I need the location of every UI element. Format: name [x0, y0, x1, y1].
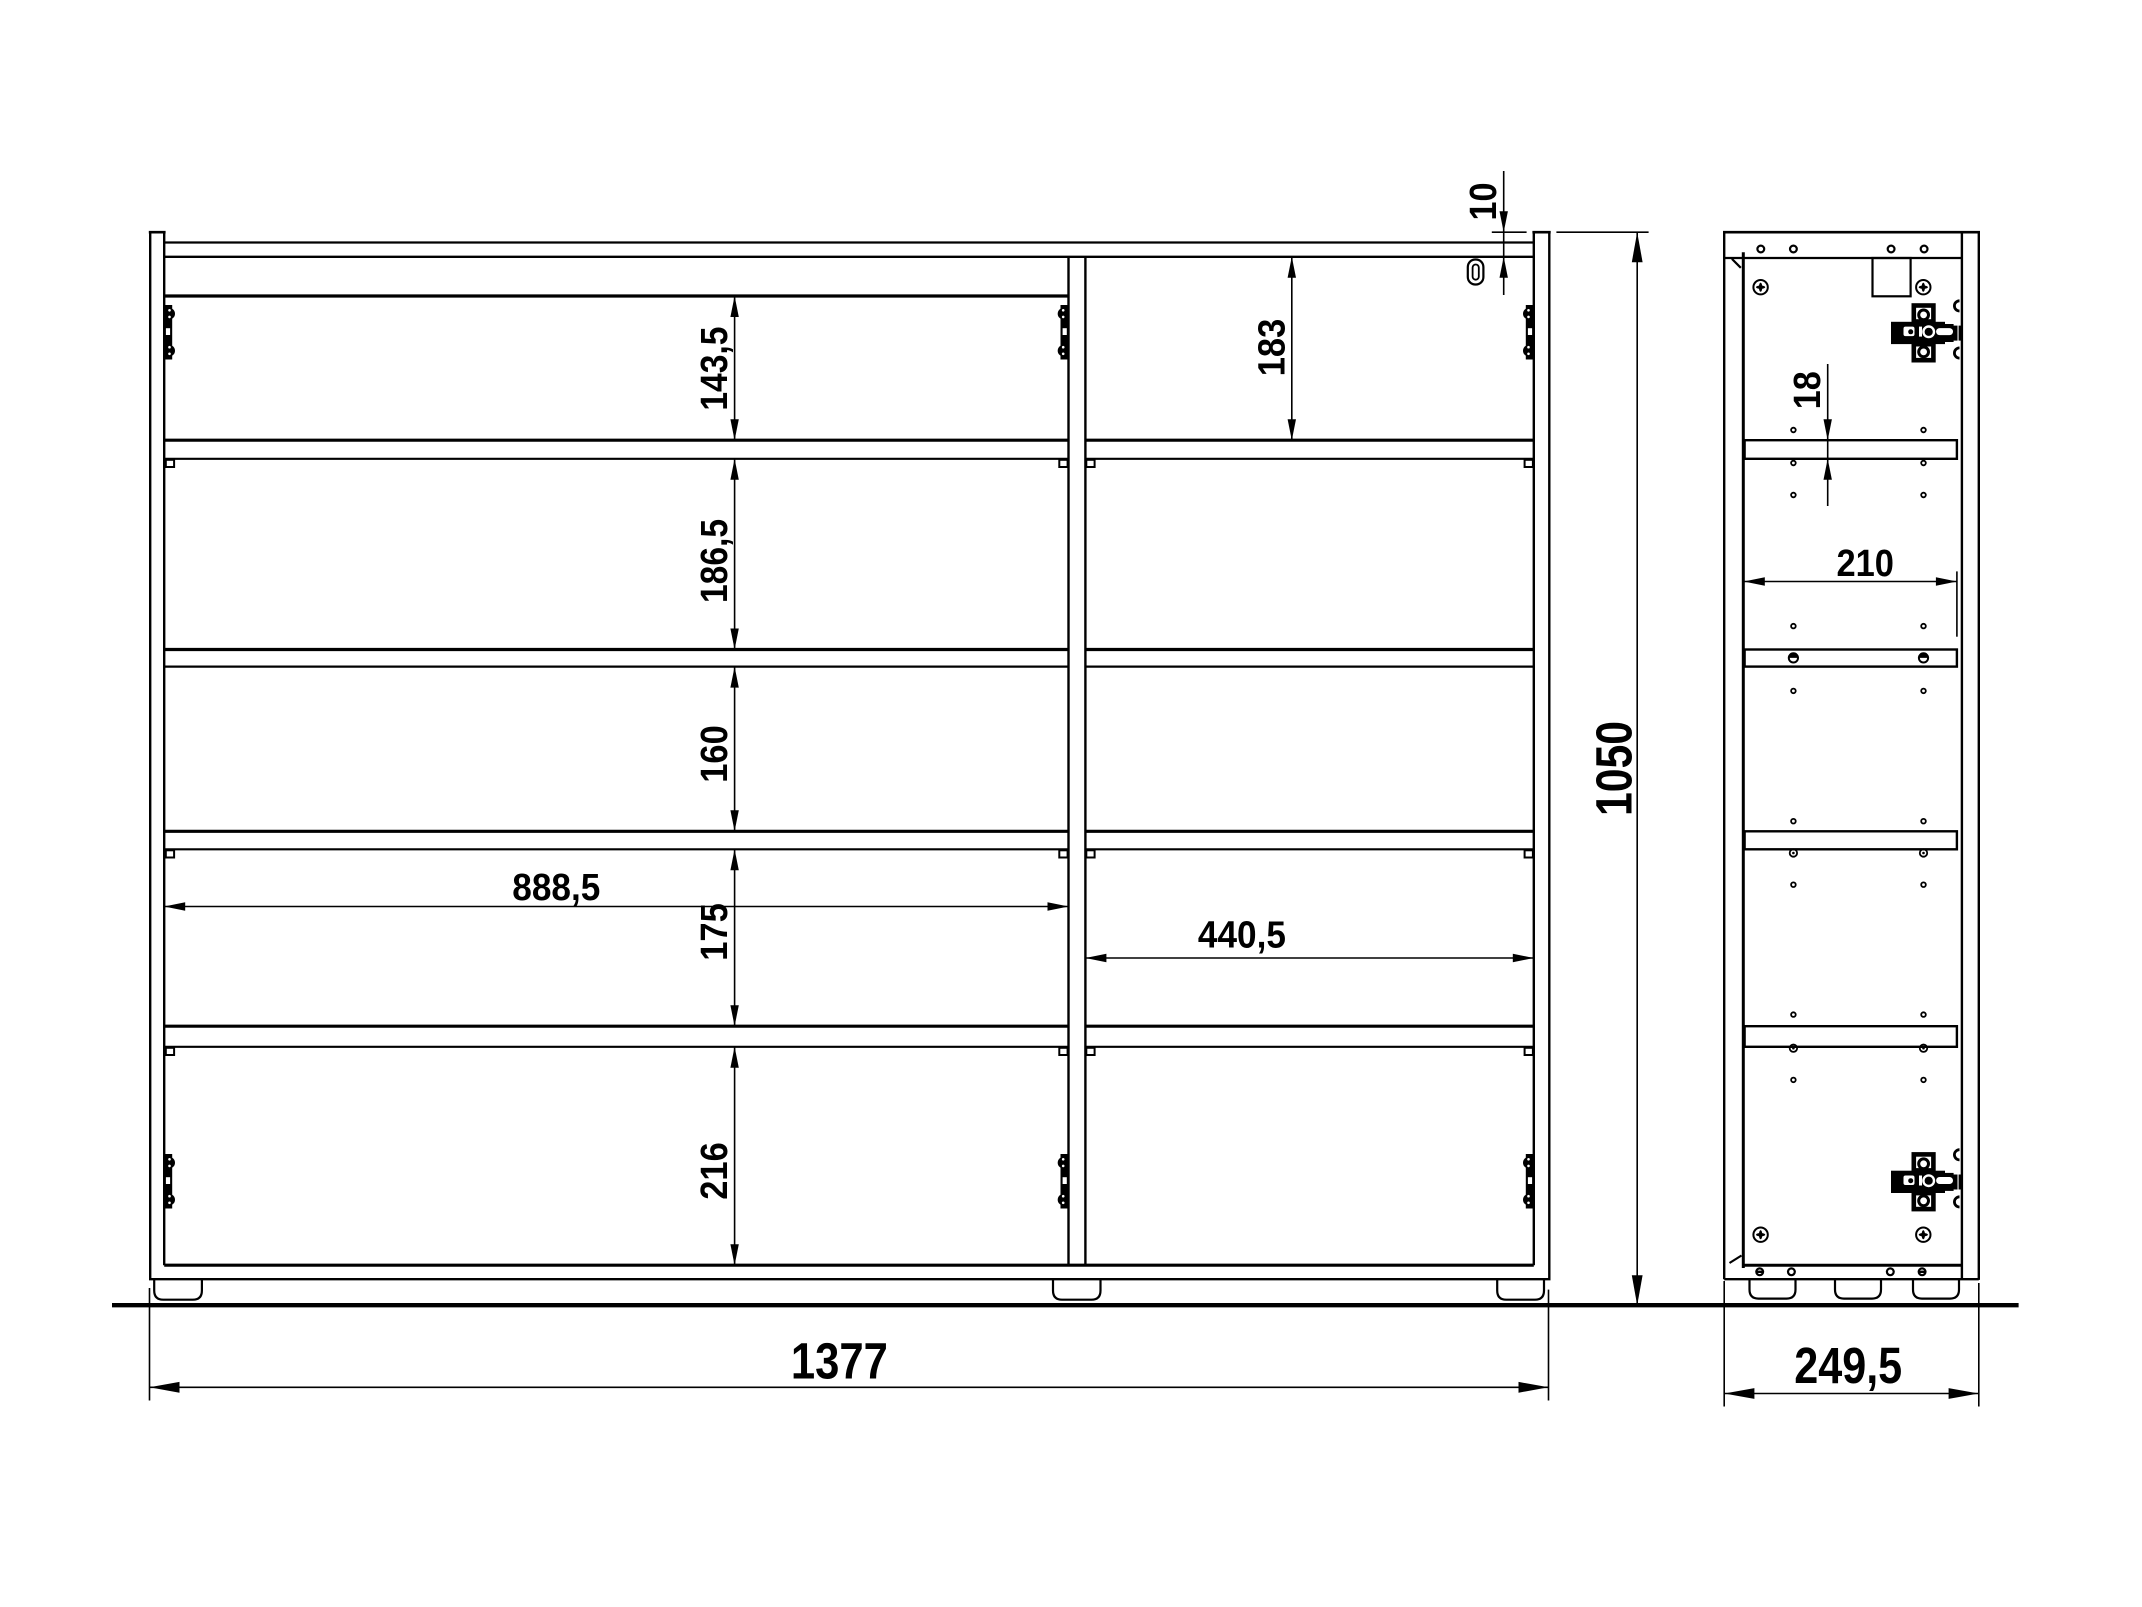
svg-text:186,5: 186,5	[694, 519, 736, 603]
svg-text:10: 10	[1463, 183, 1505, 221]
svg-text:216: 216	[694, 1142, 736, 1200]
svg-text:210: 210	[1836, 543, 1894, 585]
svg-text:1050: 1050	[1586, 721, 1643, 816]
svg-text:175: 175	[694, 903, 736, 961]
svg-text:183: 183	[1251, 319, 1293, 377]
svg-text:18: 18	[1787, 371, 1829, 409]
svg-text:249,5: 249,5	[1794, 1337, 1902, 1394]
svg-text:143,5: 143,5	[694, 327, 736, 411]
svg-text:1377: 1377	[791, 1332, 888, 1389]
svg-text:888,5: 888,5	[512, 867, 600, 909]
svg-text:160: 160	[694, 725, 736, 783]
svg-text:440,5: 440,5	[1198, 915, 1286, 957]
